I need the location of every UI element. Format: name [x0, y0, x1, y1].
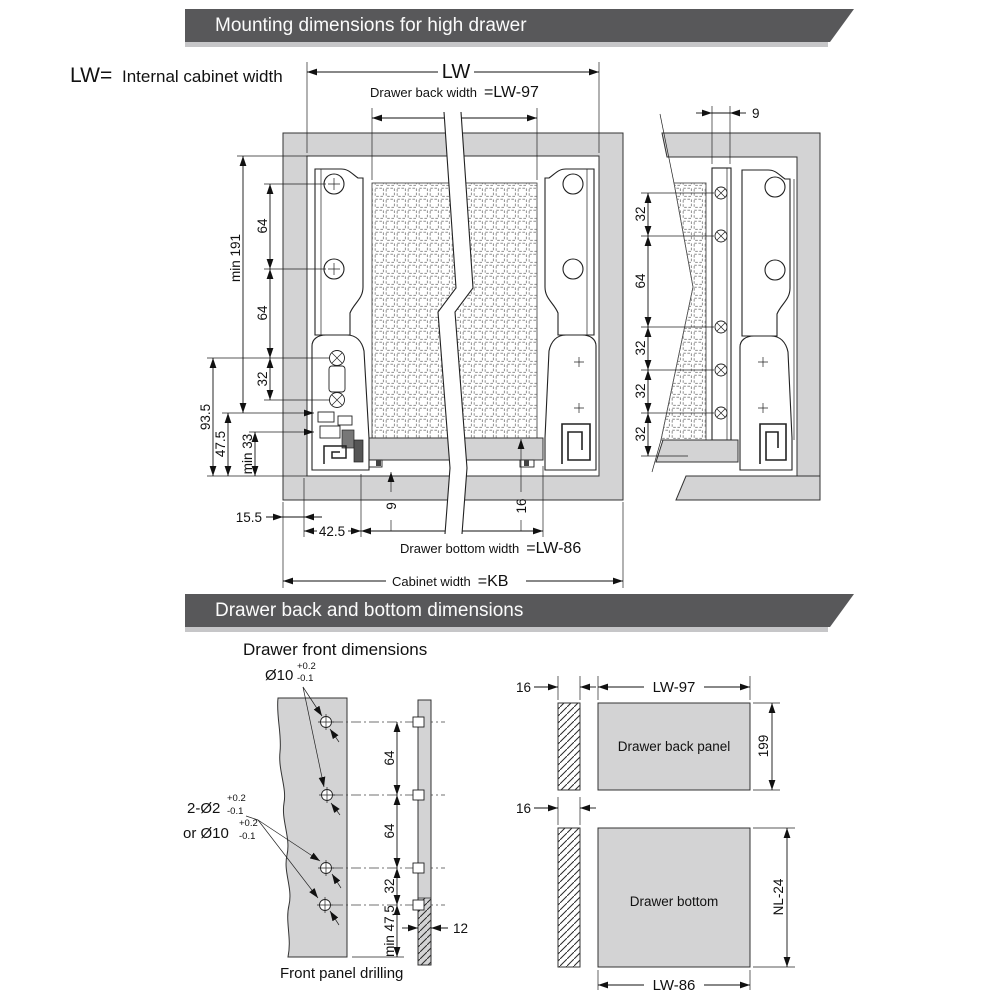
ann1-minus: -0.1	[297, 673, 313, 684]
ann1-plus: +0.2	[297, 661, 316, 672]
front-panel	[278, 698, 347, 957]
ann2-minus: -0.1	[227, 806, 243, 817]
front-panel-edge-view: 12	[402, 700, 468, 965]
technical-drawing: Mounting dimensions for high drawer LW= …	[0, 0, 1000, 1000]
banner-mounting-dimensions: Mounting dimensions for high drawer	[185, 9, 854, 47]
side-view: 9 32 64 32 32 32	[633, 106, 820, 500]
legend-lw: LW= Internal cabinet width	[70, 64, 283, 87]
back-panel-view: 16 LW-97 Drawer back panel 199	[516, 676, 780, 790]
bottom-panel-label: Drawer bottom	[630, 894, 719, 909]
bottom-panel-edge	[558, 828, 580, 967]
drill-dim-min475: min 47.5	[382, 905, 397, 957]
dim-min33: min 33	[240, 434, 255, 475]
right-bracket	[545, 335, 596, 470]
banner-back-bottom-dimensions: Drawer back and bottom dimensions	[185, 594, 854, 632]
dim-475: 47.5	[213, 431, 228, 457]
drill-dim-0: 64	[382, 750, 397, 766]
dim-425: 42.5	[319, 524, 345, 539]
ann3-text: or Ø10	[183, 825, 229, 842]
dim-min191: min 191	[228, 234, 243, 282]
dim-199: 199	[756, 735, 771, 758]
dim-16-back: 16	[516, 680, 531, 695]
caption-front-panel-drilling: Front panel drilling	[280, 965, 403, 982]
ann3-plus: +0.2	[239, 818, 258, 829]
dim-64a: 64	[255, 218, 270, 234]
dim-lw86: LW-86	[653, 977, 696, 994]
back-panel-edge	[558, 703, 580, 790]
dim-9-side: 9	[752, 106, 760, 121]
dim-935: 93.5	[198, 404, 213, 430]
dim-32: 32	[255, 371, 270, 386]
dim-9: 9	[384, 502, 399, 510]
dim-chain-4: 32	[633, 426, 648, 441]
ann2-plus: +0.2	[227, 793, 246, 804]
dim-64b: 64	[255, 305, 270, 321]
side-drawer-profile	[740, 170, 794, 470]
bottom-panel-view: 16 Drawer bottom NL-24 LW-86	[516, 797, 795, 994]
dim-chain-0: 32	[633, 206, 648, 221]
subtitle-drawer-front: Drawer front dimensions	[243, 640, 427, 659]
dim-155: 15.5	[236, 510, 262, 525]
ann3-minus: -0.1	[239, 831, 255, 842]
mounting-hole-icon	[765, 260, 785, 280]
side-drawer-bottom-strip	[656, 440, 738, 462]
mounting-hole-icon	[563, 259, 583, 279]
dim-12: 12	[453, 921, 468, 936]
dim-16-bottom: 16	[516, 801, 531, 816]
dim-chain-2: 32	[633, 340, 648, 355]
dim-chain-1: 64	[633, 273, 648, 289]
front-view: LW Drawer back width=LW-97 64 64 32 min …	[198, 61, 623, 590]
dim-cabinet-width: Cabinet width=KB	[392, 573, 508, 590]
ann1-text: Ø10	[265, 667, 293, 684]
drilling-dim-chain: 64 64 32 min 47.5	[352, 722, 404, 957]
drill-dim-2: 32	[382, 878, 397, 893]
dim-lw: LW	[442, 61, 471, 83]
ann2-text: 2-Ø2	[187, 800, 220, 817]
banner-title: Mounting dimensions for high drawer	[215, 15, 527, 36]
drilling-view: Ø10 +0.2 -0.1 2-Ø2 +0.2 -0.1 or Ø10 +0.2…	[183, 661, 468, 982]
legend-symbol: LW=	[70, 64, 112, 87]
side-back-panel-mesh	[652, 114, 706, 472]
dim-16: 16	[514, 498, 529, 513]
dim-bottom-width: Drawer bottom width=LW-86	[400, 540, 581, 557]
mounting-hole-icon	[765, 177, 785, 197]
side-drawer-back-bar	[712, 168, 731, 440]
back-panel-label: Drawer back panel	[618, 739, 731, 754]
mounting-hole-icon	[563, 174, 583, 194]
dim-nl24: NL-24	[771, 878, 786, 915]
cabinet-side-bottom	[676, 476, 820, 500]
dim-lw97: LW-97	[653, 679, 696, 696]
catalog-page: Mounting dimensions for high drawer LW= …	[0, 0, 1000, 1000]
dim-back-width: Drawer back width=LW-97	[370, 84, 539, 101]
dim-chain-3: 32	[633, 383, 648, 398]
banner-title: Drawer back and bottom dimensions	[215, 600, 523, 621]
drill-dim-1: 64	[382, 823, 397, 839]
legend-text: Internal cabinet width	[122, 67, 283, 86]
